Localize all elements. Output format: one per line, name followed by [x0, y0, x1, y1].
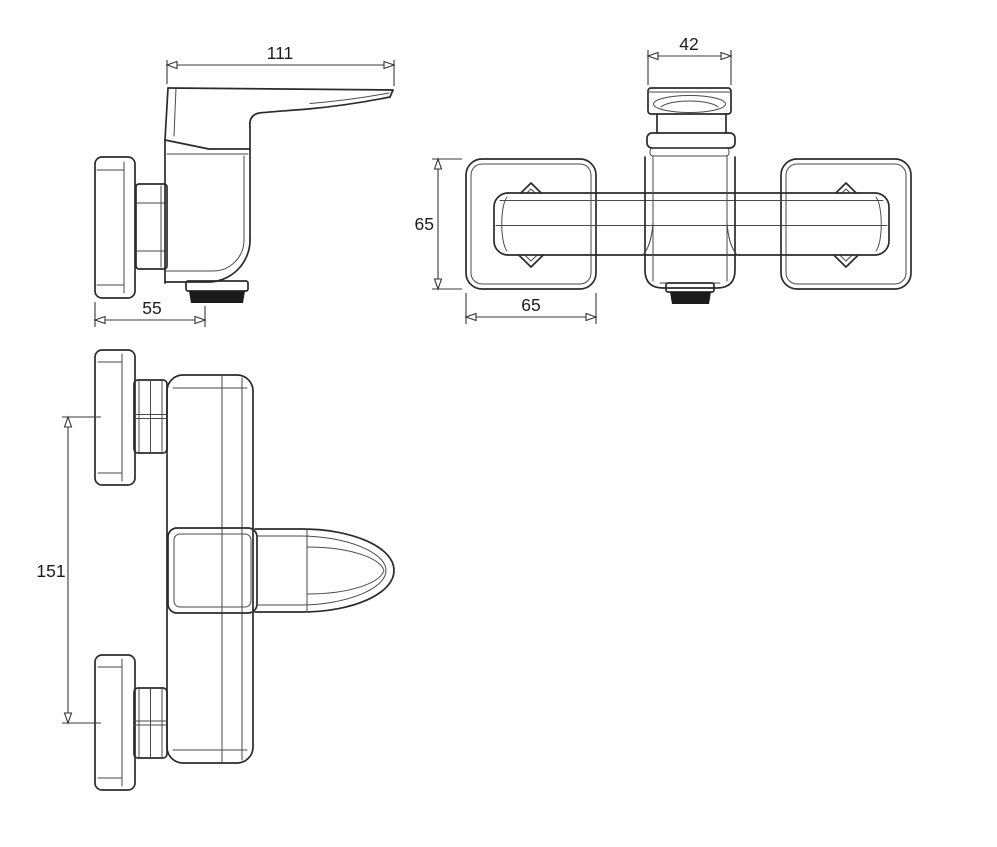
dim-arrow	[721, 53, 731, 60]
escutcheon-plate-right	[781, 159, 911, 289]
dim-arrow	[466, 314, 476, 321]
dim-label-connection-spacing: 151	[36, 561, 65, 581]
dim-label-escutcheon-height: 65	[415, 214, 434, 234]
dim-arrow	[65, 417, 72, 427]
hex-nut-top	[134, 380, 167, 453]
dim-label-wall-to-spout: 55	[142, 298, 161, 318]
lever-handle	[168, 88, 393, 127]
dimension-connection-spacing: 151	[36, 417, 101, 723]
hex-nut	[136, 184, 167, 269]
dimension-escutcheon-width: 65	[466, 293, 596, 324]
dim-arrow	[586, 314, 596, 321]
spout-outlet-front	[666, 283, 714, 304]
technical-drawing: 111 55	[0, 0, 997, 847]
top-view: 42 65 65	[415, 34, 911, 324]
mixer-body	[167, 375, 253, 763]
wall-flange	[95, 157, 135, 298]
front-view: 151	[36, 350, 394, 790]
drawing-sheet: 111 55	[0, 0, 997, 847]
dimension-escutcheon-height: 65	[415, 159, 462, 289]
dim-arrow	[95, 317, 105, 324]
dim-arrow	[648, 53, 658, 60]
dim-arrow	[195, 317, 205, 324]
dim-arrow	[435, 279, 442, 289]
dimension-handle-width: 42	[648, 34, 731, 85]
valve-body	[165, 88, 250, 283]
dim-arrow	[435, 159, 442, 169]
dim-label-handle-width: 42	[679, 34, 698, 54]
escutcheon-plate-left	[466, 159, 596, 289]
connecting-pipe	[494, 193, 889, 255]
valve-body-front	[643, 156, 737, 288]
dim-arrow	[384, 62, 394, 69]
dimension-handle-length: 111	[167, 43, 394, 86]
dim-arrow	[167, 62, 177, 69]
lever-handle-front	[647, 88, 735, 156]
spout-outlet-black	[189, 291, 245, 303]
hex-nut-bottom	[134, 688, 167, 758]
spout-outlet	[186, 281, 248, 303]
dim-label-escutcheon-width: 65	[521, 295, 540, 315]
side-view: 111 55	[95, 43, 394, 327]
dim-arrow	[65, 713, 72, 723]
lever-handle-side	[168, 528, 394, 613]
dimension-wall-to-spout: 55	[95, 298, 205, 327]
spout-outlet-black	[670, 292, 711, 304]
dim-label-handle-length: 111	[267, 43, 294, 63]
